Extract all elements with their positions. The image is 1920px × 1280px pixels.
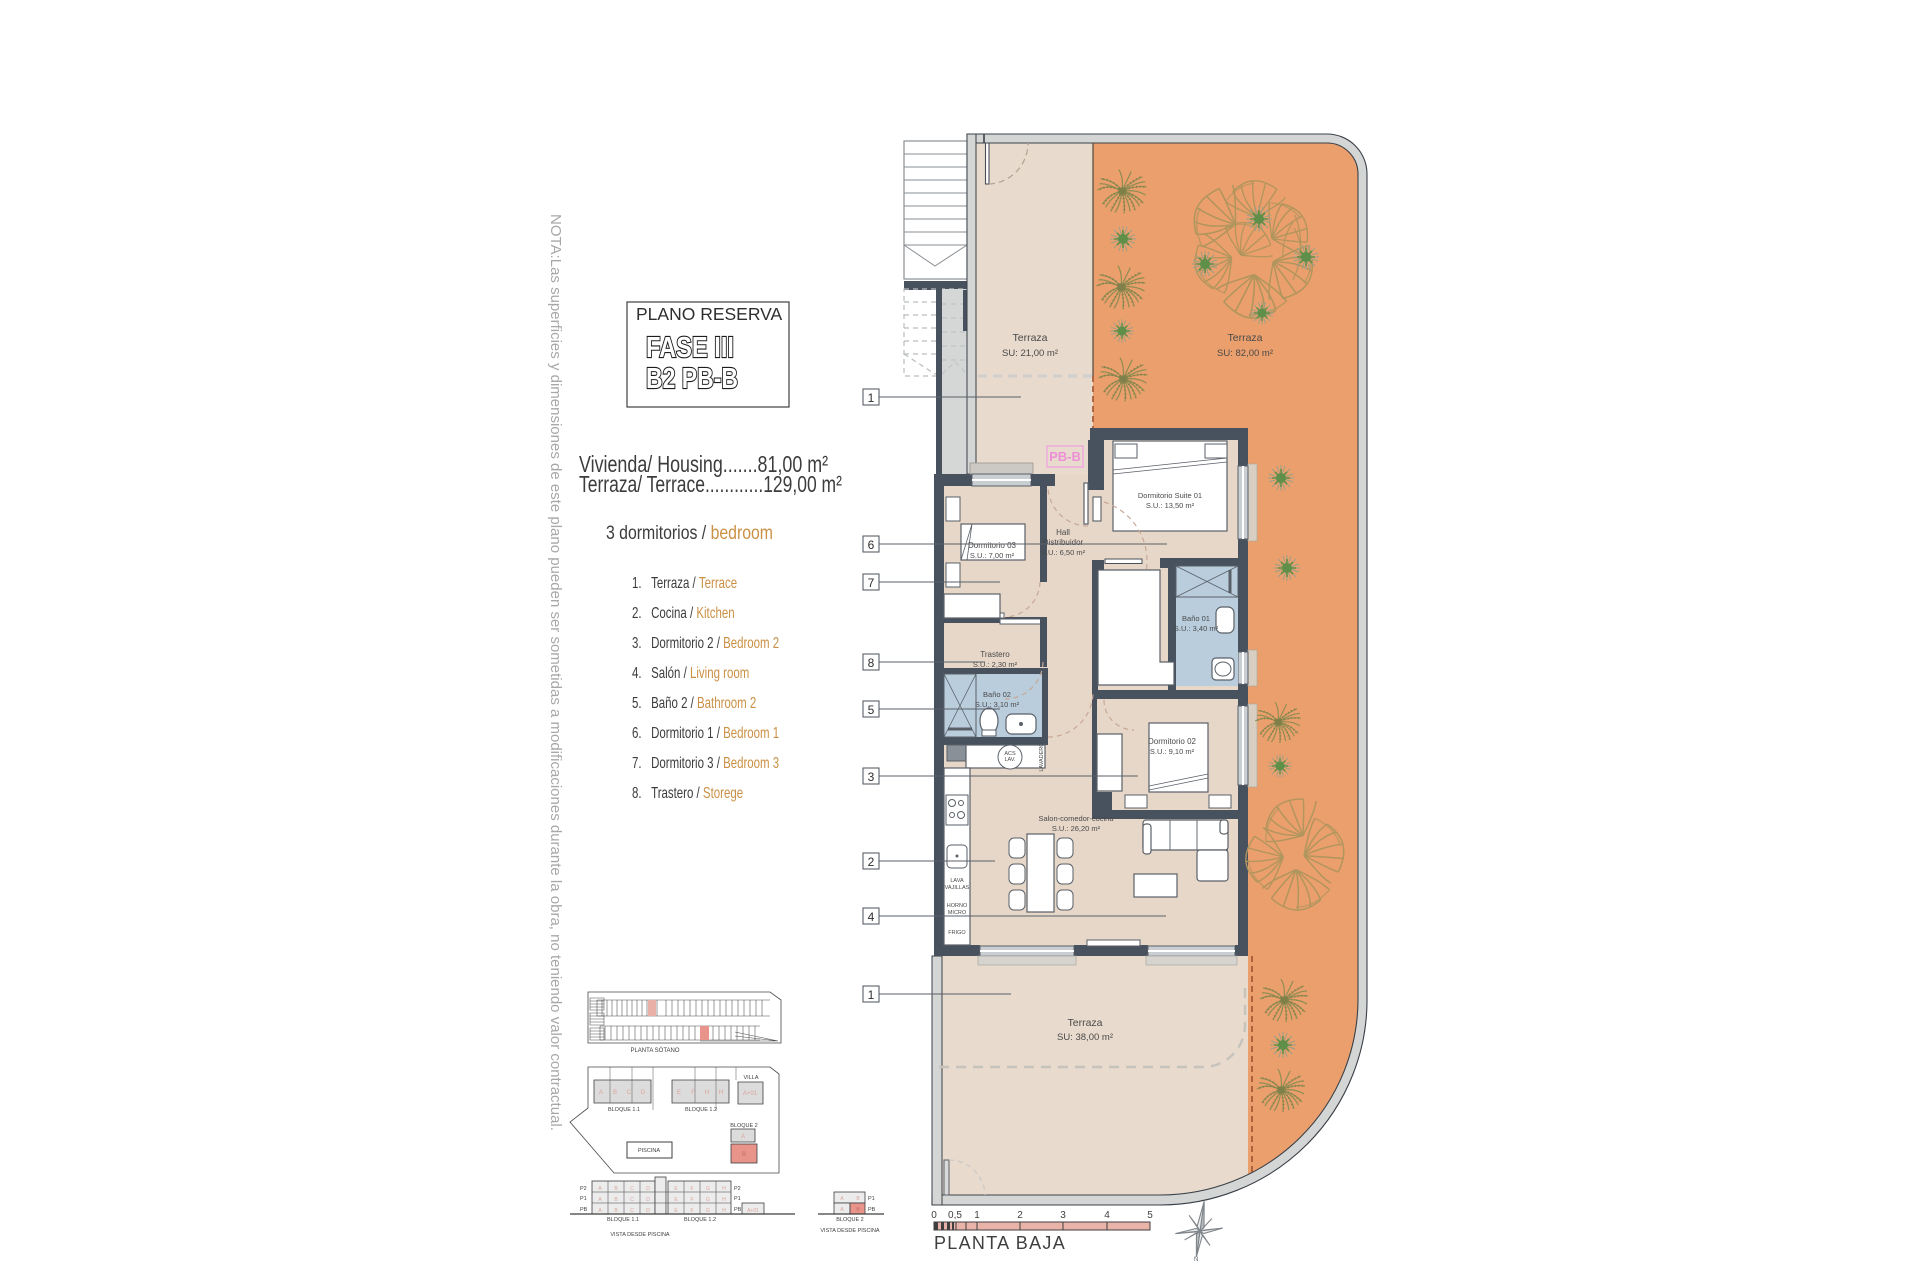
svg-text:FRIGO: FRIGO bbox=[948, 930, 966, 936]
svg-text:Trastero: Trastero bbox=[980, 650, 1010, 659]
svg-text:H: H bbox=[719, 1090, 723, 1096]
svg-text:5: 5 bbox=[868, 703, 875, 717]
svg-text:PB-B: PB-B bbox=[1049, 449, 1081, 464]
svg-text:C: C bbox=[630, 1186, 634, 1192]
svg-text:SU: 21,00 m²: SU: 21,00 m² bbox=[1002, 348, 1058, 359]
svg-text:BLOQUE 1.1: BLOQUE 1.1 bbox=[607, 1217, 639, 1223]
svg-text:S.U.: 6,50 m²: S.U.: 6,50 m² bbox=[1041, 548, 1086, 557]
svg-text:A+01: A+01 bbox=[747, 1208, 759, 1214]
svg-text:Dormitorio 03: Dormitorio 03 bbox=[968, 541, 1017, 550]
svg-text:LAV.: LAV. bbox=[1004, 757, 1015, 763]
svg-text:Distribuidor: Distribuidor bbox=[1043, 538, 1084, 547]
svg-text:VILLA: VILLA bbox=[744, 1075, 759, 1081]
svg-text:LAVA: LAVA bbox=[950, 878, 964, 884]
svg-text:3 dormitorios / bedroom: 3 dormitorios / bedroom bbox=[606, 522, 773, 544]
svg-text:P1: P1 bbox=[734, 1196, 741, 1202]
svg-text:P2: P2 bbox=[580, 1186, 587, 1192]
svg-text:7. Dormitorio 3 / Bedroom 3: 7. Dormitorio 3 / Bedroom 3 bbox=[632, 754, 779, 771]
svg-text:B: B bbox=[613, 1090, 617, 1096]
svg-text:MICRO: MICRO bbox=[948, 910, 967, 916]
svg-text:HORNO: HORNO bbox=[947, 903, 968, 909]
svg-text:BLOQUE 2: BLOQUE 2 bbox=[836, 1217, 864, 1223]
svg-text:BLOQUE 1.2: BLOQUE 1.2 bbox=[685, 1107, 717, 1113]
svg-text:0: 0 bbox=[931, 1210, 937, 1221]
svg-text:A: A bbox=[599, 1090, 603, 1096]
svg-text:0,5: 0,5 bbox=[948, 1210, 962, 1221]
svg-text:Baño 02: Baño 02 bbox=[983, 690, 1011, 699]
svg-text:Dormitorio Suite 01: Dormitorio Suite 01 bbox=[1138, 491, 1202, 500]
svg-text:D: D bbox=[646, 1186, 650, 1192]
svg-text:D: D bbox=[646, 1197, 650, 1203]
svg-text:Terraza/ Terrace............12: Terraza/ Terrace............129,00 m² bbox=[579, 472, 842, 498]
svg-text:C: C bbox=[627, 1090, 632, 1096]
svg-text:SU: 82,00 m²: SU: 82,00 m² bbox=[1217, 348, 1273, 359]
svg-text:S.U.: 7,00 m²: S.U.: 7,00 m² bbox=[970, 551, 1015, 560]
svg-text:P1: P1 bbox=[868, 1196, 875, 1202]
svg-text:7: 7 bbox=[868, 576, 875, 590]
svg-text:G: G bbox=[706, 1208, 710, 1214]
svg-text:6. Dormitorio 1 / Bedroom 1: 6. Dormitorio 1 / Bedroom 1 bbox=[632, 724, 779, 741]
svg-text:F: F bbox=[690, 1186, 693, 1192]
svg-text:F: F bbox=[690, 1197, 693, 1203]
svg-text:4: 4 bbox=[868, 910, 875, 924]
svg-text:PLANTA BAJA: PLANTA BAJA bbox=[934, 1233, 1066, 1253]
svg-text:SU: 38,00 m²: SU: 38,00 m² bbox=[1057, 1032, 1113, 1043]
svg-text:A+01: A+01 bbox=[743, 1091, 758, 1097]
svg-text:F: F bbox=[691, 1090, 695, 1096]
svg-text:VAJILLAS: VAJILLAS bbox=[945, 885, 970, 891]
svg-text:S.U.: 26,20 m²: S.U.: 26,20 m² bbox=[1052, 824, 1101, 833]
svg-text:1. Terraza / Terrace: 1. Terraza / Terrace bbox=[632, 574, 737, 591]
svg-text:2: 2 bbox=[1017, 1210, 1023, 1221]
svg-text:BLOQUE 2: BLOQUE 2 bbox=[730, 1123, 758, 1129]
svg-text:2: 2 bbox=[868, 855, 875, 869]
svg-text:H: H bbox=[705, 1090, 709, 1096]
svg-text:G: G bbox=[706, 1186, 710, 1192]
svg-text:BLOQUE 1.1: BLOQUE 1.1 bbox=[608, 1107, 640, 1113]
svg-text:Salon-comedor-cocina: Salon-comedor-cocina bbox=[1038, 814, 1114, 823]
svg-text:3. Dormitorio 2 / Bedroom 2: 3. Dormitorio 2 / Bedroom 2 bbox=[632, 634, 779, 651]
svg-text:8: 8 bbox=[868, 656, 875, 670]
svg-text:Terraza: Terraza bbox=[1227, 332, 1262, 344]
svg-text:PB: PB bbox=[868, 1207, 876, 1213]
svg-text:1: 1 bbox=[974, 1210, 980, 1221]
svg-text:PLANO RESERVA: PLANO RESERVA bbox=[636, 304, 783, 324]
svg-text:4: 4 bbox=[1104, 1210, 1110, 1221]
svg-text:FASE III: FASE III bbox=[646, 331, 734, 364]
svg-text:D: D bbox=[646, 1208, 650, 1214]
svg-text:P2: P2 bbox=[734, 1186, 741, 1192]
svg-text:5. Baño 2 / Bathroom 2: 5. Baño 2 / Bathroom 2 bbox=[632, 694, 756, 711]
svg-text:S.U.: 13,50 m²: S.U.: 13,50 m² bbox=[1146, 501, 1195, 510]
svg-text:F: F bbox=[690, 1208, 693, 1214]
svg-text:E: E bbox=[677, 1090, 681, 1096]
svg-text:D: D bbox=[641, 1090, 646, 1096]
svg-text:H: H bbox=[722, 1186, 726, 1192]
svg-text:6: 6 bbox=[868, 538, 875, 552]
svg-text:5: 5 bbox=[1147, 1210, 1153, 1221]
svg-text:N: N bbox=[1194, 1257, 1198, 1263]
svg-text:G: G bbox=[706, 1197, 710, 1203]
svg-text:LAVADERO: LAVADERO bbox=[1039, 742, 1045, 772]
svg-text:A: A bbox=[741, 1134, 745, 1140]
svg-text:C: C bbox=[630, 1197, 634, 1203]
svg-text:Terraza: Terraza bbox=[1067, 1017, 1102, 1029]
svg-text:H: H bbox=[722, 1197, 726, 1203]
svg-text:Terraza: Terraza bbox=[1012, 332, 1047, 344]
svg-text:P1: P1 bbox=[580, 1196, 587, 1202]
svg-text:8. Trastero / Storege: 8. Trastero / Storege bbox=[632, 784, 743, 801]
svg-text:S.U.: 2,30 m²: S.U.: 2,30 m² bbox=[973, 660, 1018, 669]
svg-text:2. Cocina / Kitchen: 2. Cocina / Kitchen bbox=[632, 604, 735, 621]
svg-text:BLOQUE 1.2: BLOQUE 1.2 bbox=[684, 1217, 716, 1223]
svg-text:PB: PB bbox=[580, 1207, 588, 1213]
svg-text:VISTA DESDE PISCINA: VISTA DESDE PISCINA bbox=[610, 1232, 670, 1238]
svg-text:3: 3 bbox=[868, 770, 875, 784]
svg-text:Dormitorio 02: Dormitorio 02 bbox=[1148, 737, 1197, 746]
svg-text:PB: PB bbox=[734, 1207, 742, 1213]
svg-text:C: C bbox=[630, 1208, 634, 1214]
svg-text:PISCINA: PISCINA bbox=[638, 1148, 660, 1154]
svg-text:S.U.: 3,40 m²: S.U.: 3,40 m² bbox=[1174, 624, 1219, 633]
svg-text:Baño 01: Baño 01 bbox=[1182, 614, 1210, 623]
svg-text:1: 1 bbox=[868, 988, 875, 1002]
svg-text:B: B bbox=[742, 1152, 746, 1158]
svg-text:NOTA:Las superficies y dimensi: NOTA:Las superficies y dimensiones de es… bbox=[547, 214, 564, 1131]
svg-text:PLANTA SÓTANO: PLANTA SÓTANO bbox=[630, 1047, 679, 1054]
svg-text:1: 1 bbox=[868, 391, 875, 405]
svg-text:S.U.: 3,10 m²: S.U.: 3,10 m² bbox=[975, 700, 1020, 709]
svg-text:4. Salón / Living room: 4. Salón / Living room bbox=[632, 664, 749, 681]
svg-text:H: H bbox=[722, 1208, 726, 1214]
svg-text:3: 3 bbox=[1060, 1210, 1066, 1221]
svg-text:B2 PB-B: B2 PB-B bbox=[646, 361, 738, 394]
svg-text:S.U.: 9,10 m²: S.U.: 9,10 m² bbox=[1150, 747, 1195, 756]
svg-text:Hall: Hall bbox=[1056, 528, 1070, 537]
svg-text:VISTA DESDE PISCINA: VISTA DESDE PISCINA bbox=[820, 1228, 880, 1234]
